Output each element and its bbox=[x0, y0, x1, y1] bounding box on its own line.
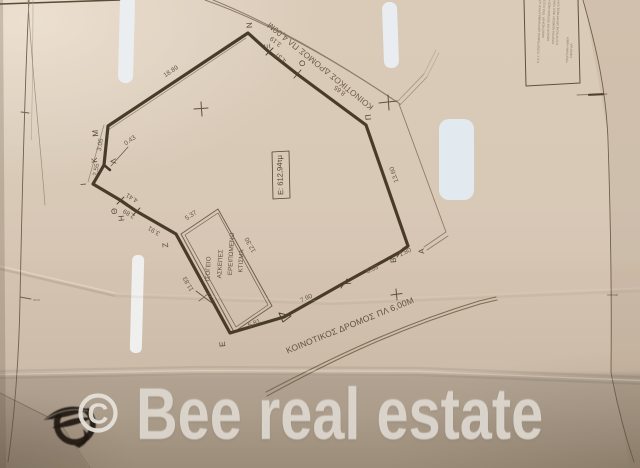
svg-text:5.81: 5.81 bbox=[247, 318, 262, 330]
svg-text:Ε: 612,94τμ: Ε: 612,94τμ bbox=[275, 155, 285, 195]
svg-text:ΚΤΙΣΜΑ: ΚΤΙΣΜΑ bbox=[237, 248, 245, 272]
svg-text:ΧΩΡΑΦΙ: ΧΩΡΑΦΙ bbox=[607, 293, 618, 297]
svg-text:ΕΡΕΙΠΩΜΕΝΟ: ΕΡΕΙΠΩΜΕΝΟ bbox=[227, 232, 236, 275]
svg-text:4.37: 4.37 bbox=[274, 50, 289, 64]
svg-text:ΚΟΙΝΟΤΙΚΟΣ ΔΡΟΜΟΣ ΠΛ 4,00Μ: ΚΟΙΝΟΤΙΚΟΣ ΔΡΟΜΟΣ ΠΛ 4,00Μ bbox=[265, 20, 375, 112]
svg-text:1.80: 1.80 bbox=[398, 247, 413, 259]
svg-text:Ζ: Ζ bbox=[161, 242, 170, 248]
svg-text:3.05: 3.05 bbox=[96, 138, 105, 152]
svg-text:ΙΣΟΓΕΙΟ: ΙΣΟΓΕΙΟ bbox=[204, 256, 212, 281]
svg-text:13.60: 13.60 bbox=[389, 165, 401, 183]
svg-text:Ξ: Ξ bbox=[263, 43, 272, 49]
svg-text:Β: Β bbox=[389, 257, 398, 263]
svg-text:Ν: Ν bbox=[245, 22, 254, 29]
svg-text:18.89: 18.89 bbox=[162, 64, 180, 79]
svg-text:Ο ΣΥΝΤΑΞΑΣ ΜΕΛΕΤΗΣΑΣ ΙΟΥΝΙΟΣ: Ο ΣΥΝΤΑΞΑΣ ΜΕΛΕΤΗΣΑΣ ΙΟΥΝΙΟΣ bbox=[555, 0, 561, 45]
svg-text:Α: Α bbox=[417, 248, 426, 255]
svg-text:Λ: Λ bbox=[109, 158, 118, 165]
svg-text:Μ: Μ bbox=[91, 129, 101, 137]
svg-text:ΣΦΡΑΓΙΔΑ: ΣΦΡΑΓΙΔΑ bbox=[569, 43, 574, 58]
svg-text:Θ: Θ bbox=[110, 208, 120, 215]
svg-text:ΑΣΚΕΠΕΣ: ΑΣΚΕΠΕΣ bbox=[216, 249, 225, 279]
svg-text:Ε: Ε bbox=[218, 341, 227, 347]
svg-text:11.83: 11.83 bbox=[182, 275, 196, 293]
svg-text:5.37: 5.37 bbox=[184, 209, 199, 222]
svg-text:4.41: 4.41 bbox=[125, 191, 140, 204]
svg-text:12.30: 12.30 bbox=[244, 236, 258, 254]
svg-text:0.43: 0.43 bbox=[123, 134, 138, 147]
svg-text:ΟΡΙΟ: ΟΡΙΟ bbox=[33, 298, 41, 302]
svg-text:Ι: Ι bbox=[79, 183, 88, 186]
svg-text:Π: Π bbox=[364, 114, 373, 121]
